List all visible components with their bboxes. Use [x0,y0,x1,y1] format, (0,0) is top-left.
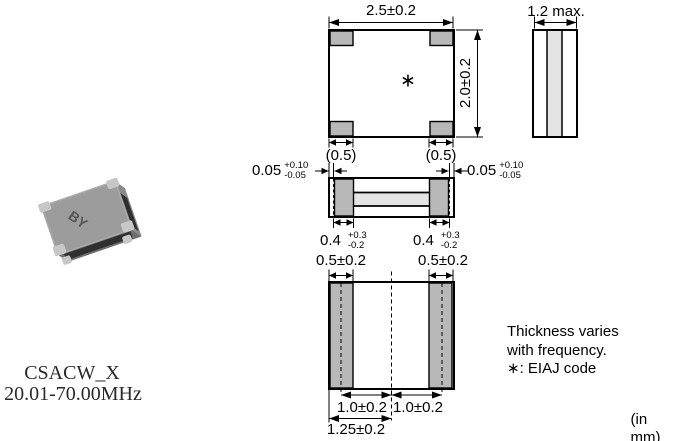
product-series: CSACW_X [24,363,120,383]
edge-margin-tol-minus-left: -0.05 [284,171,308,181]
land-width-dim-left: 0.5±0.2 [316,252,366,270]
terminal-dim-left: 0.4 +0.3 -0.2 [320,230,367,252]
terminal-tol-minus-right: -0.2 [441,241,460,251]
corner-pad-top-right [430,31,453,46]
terminal-dim-right: 0.4 +0.3 -0.2 [413,230,460,252]
edge-margin-dim-right: 0.05 +0.10 -0.05 [467,160,523,182]
datasheet-page: BY 2.5±0.2 2.0±0.2 1.2 max. (0.5) (0.5) … [0,0,680,441]
pitch-dim-right: 1.0±0.2 [393,399,443,417]
edge-margin-dim-left: 0.05 +0.10 -0.05 [252,160,308,182]
edge-margin-value-left: 0.05 [252,163,281,179]
bottom-land-right [429,283,452,388]
top-width-dim: 2.5±0.2 [366,2,416,20]
front-view-linework [315,163,468,228]
pitch-dim-left: 1.0±0.2 [337,399,387,417]
terminal-tol-minus-left: -0.2 [348,241,367,251]
corner-pad-top-left [330,31,353,46]
eiaj-code-mark: ∗ [400,72,416,91]
edge-margin-tol-minus-right: -0.05 [499,171,523,181]
terminal-value-left: 0.4 [320,233,341,249]
corner-pad-dim-left: (0.5) [326,147,357,165]
component-photo: BY [38,176,143,267]
product-frequency-range: 20.01-70.00MHz [4,384,142,404]
thickness-note-line2: with frequency. [507,342,619,361]
thickness-note-line1: Thickness varies [507,323,619,342]
edge-margin-value-right: 0.05 [467,163,496,179]
center-offset-dim: 1.25±0.2 [327,421,385,439]
terminal-value-right: 0.4 [413,233,434,249]
front-terminal-right [430,179,449,216]
land-width-dim-right: 0.5±0.2 [418,252,468,270]
top-height-dim: 2.0±0.2 [457,58,475,108]
side-thickness-dim: 1.2 max. [527,3,585,21]
units-note: (in mm) [631,411,664,441]
side-view-linework [533,17,577,138]
thickness-note: Thickness varies with frequency. ∗: EIAJ… [507,323,619,379]
corner-pad-dim-right: (0.5) [426,147,457,165]
corner-pad-bottom-right [430,122,453,137]
eiaj-note-line: ∗: EIAJ code [507,360,619,379]
corner-pad-bottom-left [330,122,353,137]
front-terminal-left [335,179,354,216]
